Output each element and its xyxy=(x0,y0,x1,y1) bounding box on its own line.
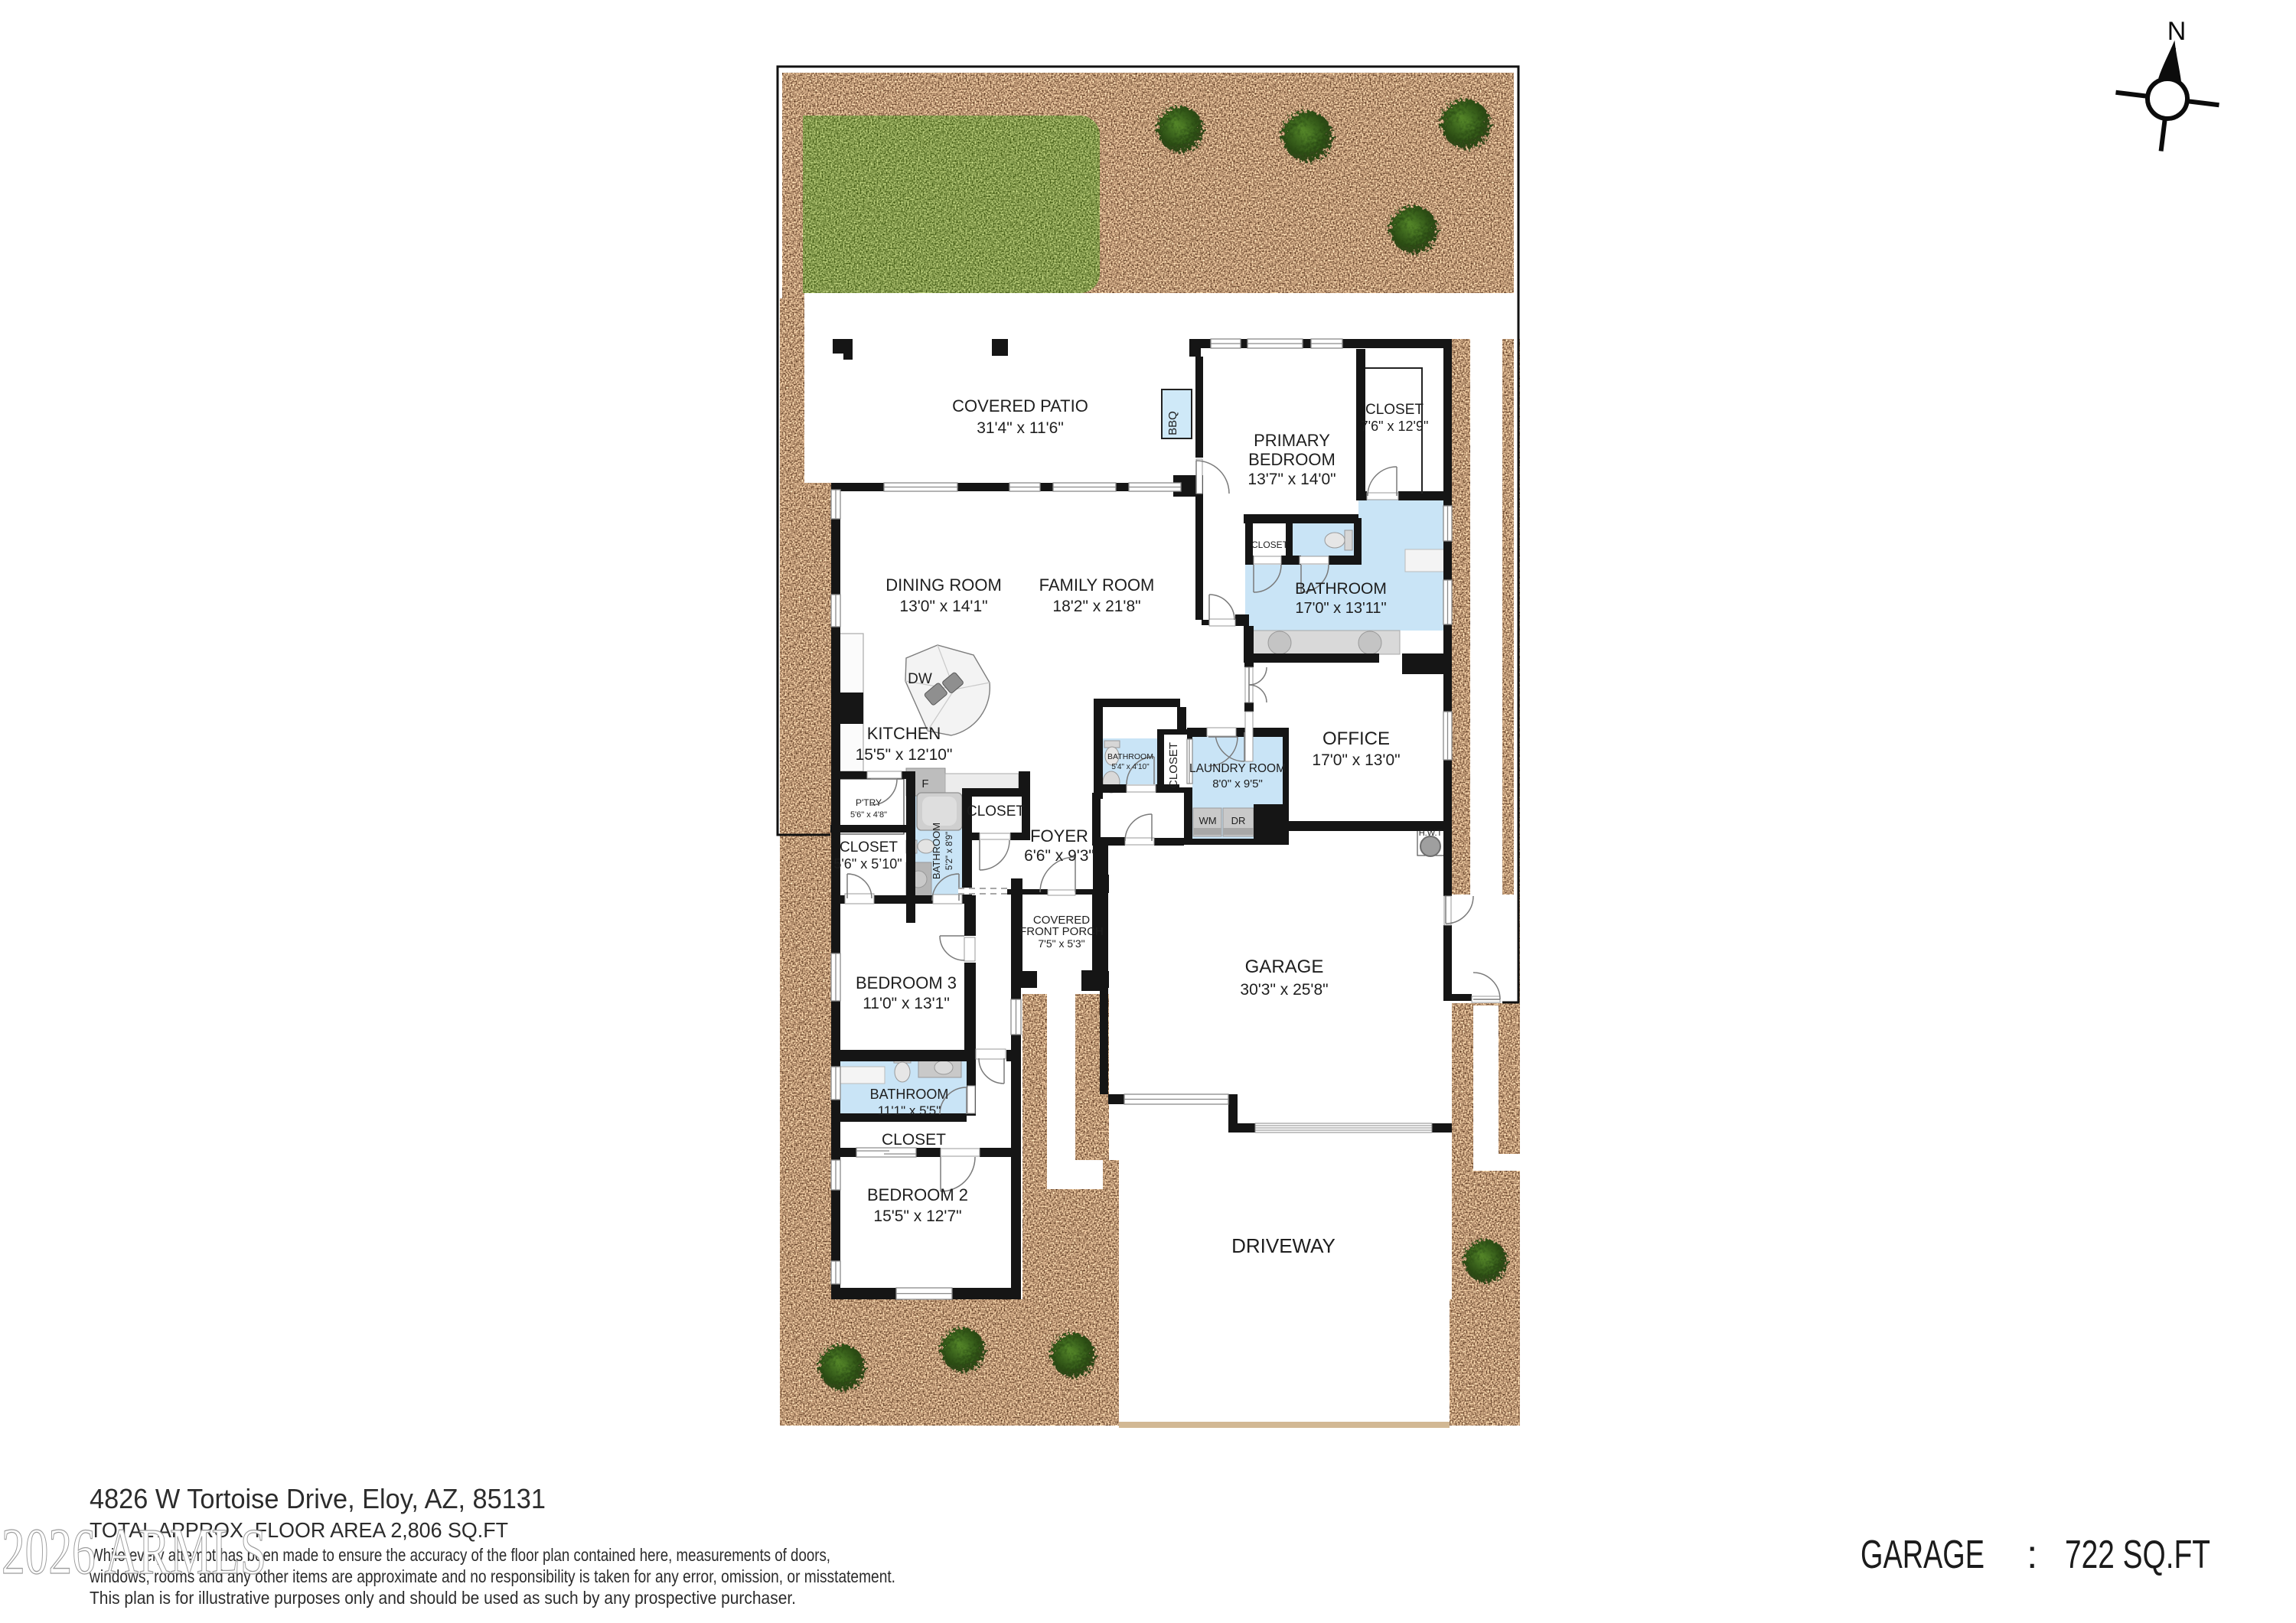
svg-text:4826 W Tortoise Drive, Eloy, A: 4826 W Tortoise Drive, Eloy, AZ, 85131 xyxy=(90,1483,546,1514)
svg-text:PRIMARY: PRIMARY xyxy=(1254,431,1330,450)
svg-text:CLOSET: CLOSET xyxy=(882,1131,946,1149)
svg-text:722 SQ.FT: 722 SQ.FT xyxy=(2065,1533,2210,1577)
svg-text:5'2" x 8'9": 5'2" x 8'9" xyxy=(945,832,954,870)
svg-text:BEDROOM 3: BEDROOM 3 xyxy=(856,973,957,992)
svg-text:DR: DR xyxy=(1231,815,1246,826)
svg-text:F: F xyxy=(921,777,928,790)
svg-text:BATHROOM: BATHROOM xyxy=(1107,752,1153,761)
svg-text:BEDROOM 2: BEDROOM 2 xyxy=(867,1185,968,1204)
svg-text:17'0" x 13'0": 17'0" x 13'0" xyxy=(1312,751,1400,769)
svg-text:BATHROOM: BATHROOM xyxy=(931,823,942,879)
svg-text:H.W.T: H.W.T xyxy=(1419,829,1443,838)
svg-text:P'TRY: P'TRY xyxy=(856,797,882,808)
svg-text:CLOSET: CLOSET xyxy=(1251,539,1289,550)
svg-text:5'4" x 4'10": 5'4" x 4'10" xyxy=(1111,763,1150,771)
svg-text:15'5" x 12'10": 15'5" x 12'10" xyxy=(856,746,953,764)
svg-text:LAUNDRY ROOM: LAUNDRY ROOM xyxy=(1189,762,1286,775)
svg-text:31'4" x 11'6": 31'4" x 11'6" xyxy=(977,419,1064,437)
svg-text:11'1" x 5'5": 11'1" x 5'5" xyxy=(878,1103,941,1118)
svg-text:7'5" x 5'3": 7'5" x 5'3" xyxy=(1038,937,1084,950)
svg-text:This plan is for illustrative: This plan is for illustrative purposes o… xyxy=(90,1588,796,1608)
svg-text:8'0" x 9'5": 8'0" x 9'5" xyxy=(1212,777,1263,790)
svg-text:5'6" x 4'8": 5'6" x 4'8" xyxy=(850,810,887,820)
svg-text:30'3" x 25'8": 30'3" x 25'8" xyxy=(1240,981,1328,999)
svg-text:CLOSET: CLOSET xyxy=(967,803,1025,820)
svg-text:17'0" x 13'11": 17'0" x 13'11" xyxy=(1295,600,1386,617)
svg-text:BATHROOM: BATHROOM xyxy=(870,1087,949,1102)
svg-text:5'6" x 5’10": 5'6" x 5’10" xyxy=(833,856,902,872)
svg-text:DRIVEWAY: DRIVEWAY xyxy=(1231,1234,1336,1257)
svg-text:DINING ROOM: DINING ROOM xyxy=(885,575,1002,595)
svg-text:2026 ARMLS: 2026 ARMLS xyxy=(2,1514,266,1588)
svg-text:KITCHEN: KITCHEN xyxy=(867,724,941,743)
svg-text:BEDROOM: BEDROOM xyxy=(1248,450,1336,469)
svg-text:CLOSET: CLOSET xyxy=(1167,742,1180,788)
svg-text::: : xyxy=(2027,1533,2037,1577)
svg-text:DW: DW xyxy=(908,671,932,687)
svg-text:BBQ: BBQ xyxy=(1166,411,1179,435)
svg-text:6'6" x 9'3": 6'6" x 9'3" xyxy=(1024,847,1094,865)
svg-text:GARAGE: GARAGE xyxy=(1861,1533,1985,1577)
svg-text:FAMILY ROOM: FAMILY ROOM xyxy=(1039,575,1155,595)
svg-text:15'5" x 12'7": 15'5" x 12'7" xyxy=(873,1207,961,1225)
svg-text:7'6" x 12'9": 7'6" x 12'9" xyxy=(1361,419,1429,434)
svg-text:CLOSET: CLOSET xyxy=(840,839,898,855)
svg-text:COVERED PATIO: COVERED PATIO xyxy=(952,396,1088,416)
svg-text:FOYER: FOYER xyxy=(1030,826,1088,846)
svg-text:18'2" x 21'8": 18'2" x 21'8" xyxy=(1052,598,1140,615)
svg-text:11'0" x 13'1": 11'0" x 13'1" xyxy=(863,995,950,1012)
svg-text:13'7" x 14'0": 13'7" x 14'0" xyxy=(1247,471,1336,488)
svg-text:WM: WM xyxy=(1199,815,1216,826)
svg-text:13'0" x 14'1": 13'0" x 14'1" xyxy=(899,598,987,615)
svg-text:OFFICE: OFFICE xyxy=(1322,728,1390,749)
svg-text:GARAGE: GARAGE xyxy=(1245,957,1324,977)
svg-text:BATHROOM: BATHROOM xyxy=(1295,580,1387,598)
svg-text:FRONT PORCH: FRONT PORCH xyxy=(1019,925,1104,938)
svg-text:N: N xyxy=(2167,17,2187,46)
svg-text:CLOSET: CLOSET xyxy=(1365,402,1424,418)
